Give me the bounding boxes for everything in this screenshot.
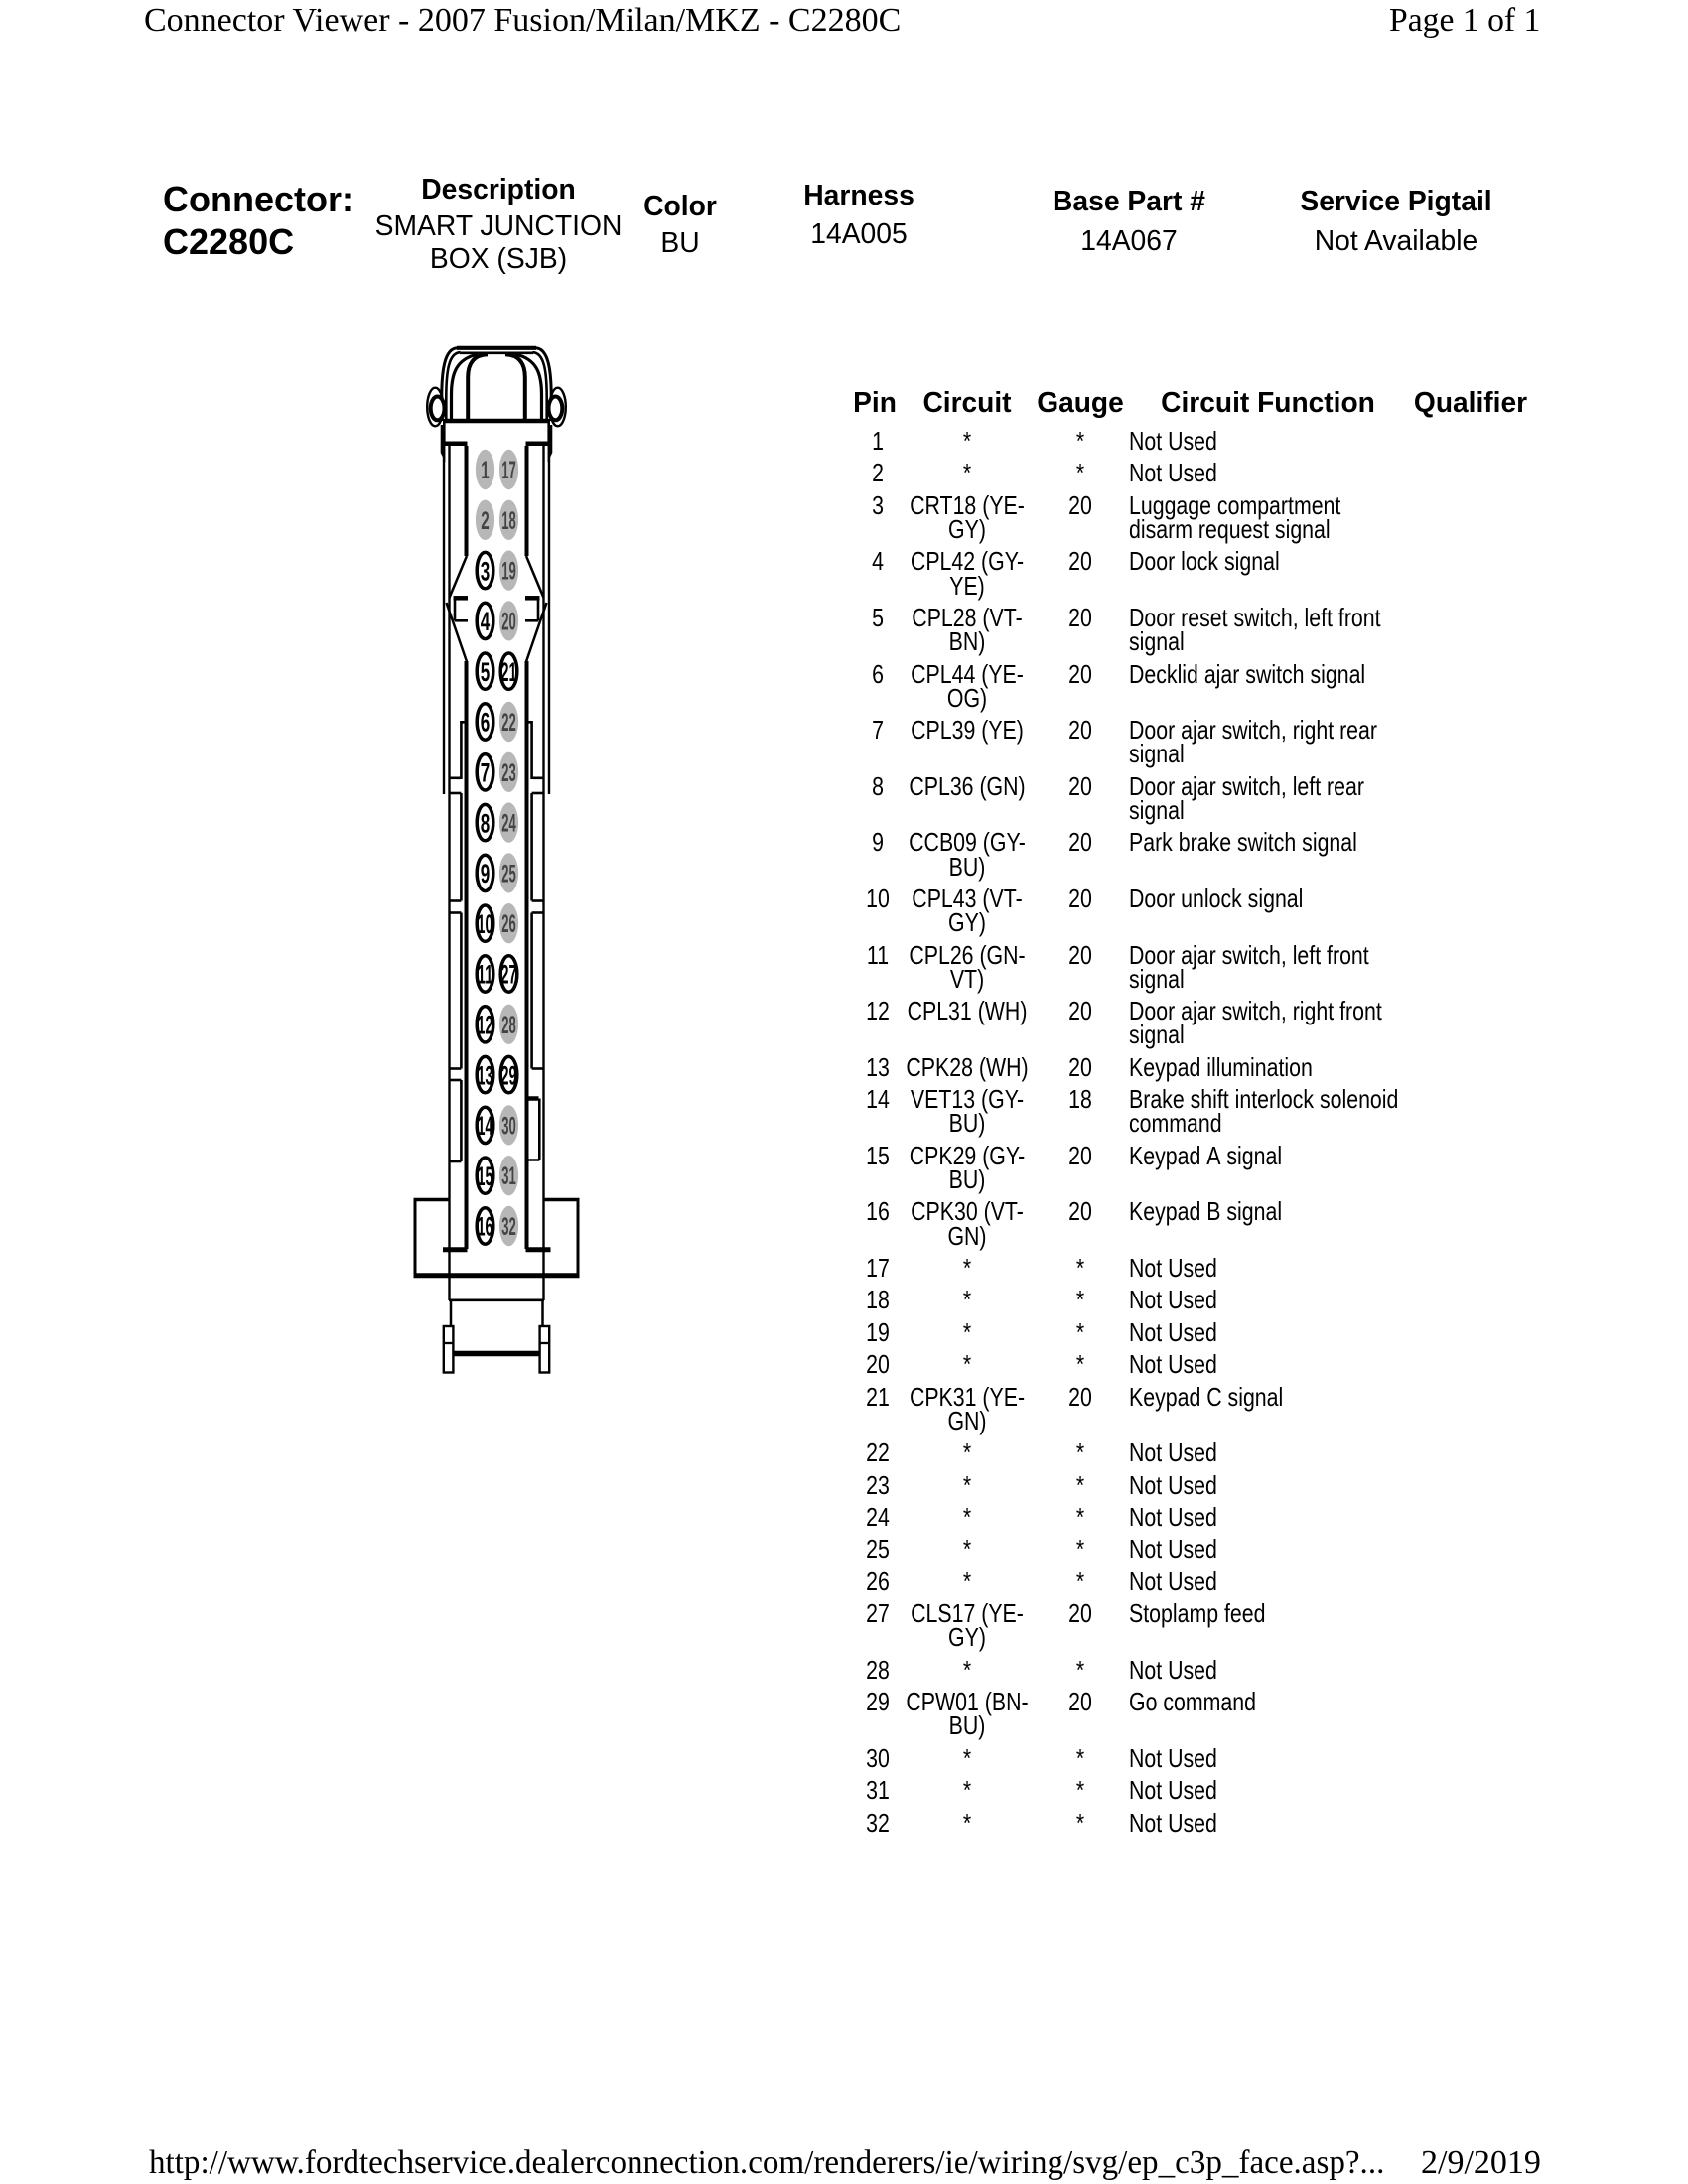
- svg-text:29: 29: [501, 1060, 517, 1090]
- svg-text:7: 7: [481, 758, 491, 788]
- svg-text:9: 9: [481, 859, 491, 888]
- svg-text:21: 21: [501, 657, 517, 687]
- svg-text:10: 10: [478, 909, 493, 939]
- svg-text:1: 1: [481, 457, 490, 484]
- svg-text:6: 6: [481, 708, 491, 738]
- svg-text:24: 24: [501, 810, 516, 838]
- svg-text:4: 4: [481, 607, 491, 636]
- svg-text:2: 2: [481, 507, 490, 535]
- svg-text:11: 11: [478, 960, 493, 990]
- svg-text:28: 28: [501, 1012, 516, 1039]
- svg-text:30: 30: [501, 1112, 516, 1140]
- svg-text:23: 23: [501, 759, 516, 787]
- svg-text:14: 14: [478, 1111, 493, 1141]
- svg-text:32: 32: [501, 1213, 516, 1241]
- svg-text:17: 17: [501, 457, 516, 484]
- svg-text:26: 26: [501, 910, 516, 938]
- svg-text:25: 25: [501, 860, 516, 887]
- svg-text:8: 8: [481, 808, 491, 838]
- svg-text:13: 13: [478, 1060, 493, 1090]
- svg-text:16: 16: [478, 1212, 493, 1242]
- svg-text:3: 3: [481, 556, 491, 586]
- svg-text:15: 15: [478, 1161, 493, 1191]
- svg-text:31: 31: [501, 1162, 516, 1190]
- svg-text:20: 20: [501, 608, 516, 635]
- svg-text:27: 27: [501, 960, 517, 990]
- svg-text:12: 12: [478, 1011, 493, 1040]
- svg-text:19: 19: [501, 558, 516, 586]
- svg-text:5: 5: [481, 657, 491, 687]
- svg-text:18: 18: [501, 507, 516, 535]
- svg-text:22: 22: [501, 709, 516, 737]
